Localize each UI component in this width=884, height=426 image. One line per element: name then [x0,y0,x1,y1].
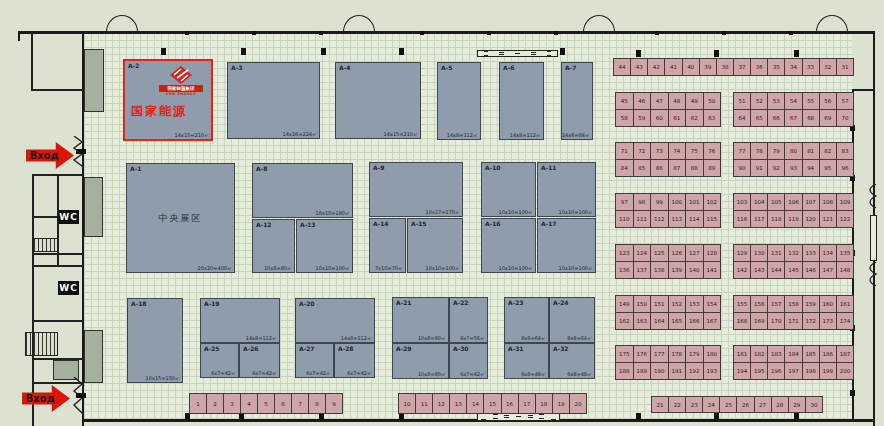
booth-a-22[interactable]: A-228x7=56㎡ [449,297,488,343]
small-booth-104[interactable]: 104 [750,193,768,211]
small-booth-178[interactable]: 178 [668,345,687,363]
small-booth-169[interactable]: 169 [750,312,768,330]
wall-dot [319,31,323,35]
small-booth-24[interactable]: 24 [702,396,720,413]
small-booth-19[interactable]: 19 [552,393,570,414]
small-booth-82[interactable]: 82 [819,142,837,160]
small-booth-175[interactable]: 175 [615,345,634,363]
small-booth-162[interactable]: 162 [615,312,634,330]
booth-a-21[interactable]: A-2110x8=80㎡ [392,297,449,343]
small-booth-164[interactable]: 164 [650,312,669,330]
small-booth-59[interactable]: 59 [633,109,652,127]
small-booth-65[interactable]: 65 [750,109,768,127]
booth-row: 90919293949596 [734,160,854,177]
booth-a-9[interactable]: A-910x17=170㎡ [369,162,463,217]
small-booth-15[interactable]: 15 [483,393,501,414]
small-booth-99[interactable]: 99 [650,193,669,211]
column-marker [636,413,641,420]
booth-row: 162163164165166167 [616,313,721,330]
small-booth-161[interactable]: 161 [836,295,854,313]
small-booth-66[interactable]: 66 [767,109,785,127]
small-booth-140[interactable]: 140 [685,261,704,279]
booth-size-label: 6x7=42㎡ [460,371,485,377]
small-booth-197[interactable]: 197 [784,362,802,380]
wc-label-bottom: WC [58,281,79,295]
booth-row: 110111112113114115 [616,211,721,228]
column-marker [794,413,799,420]
booth-a-20[interactable]: A-2014x8=112㎡ [295,298,375,343]
small-booth-5[interactable]: 5 [257,393,275,414]
small-booth-160[interactable]: 160 [819,295,837,313]
wall-dot [487,31,491,35]
booth-a-7[interactable]: A-714x6=84㎡ [561,62,593,140]
booth-size-label: 6x7=42㎡ [347,370,372,376]
booth-a-26[interactable]: A-266x7=42㎡ [239,343,280,378]
small-booth-149[interactable]: 149 [615,295,634,313]
small-booth-1[interactable]: 1 [189,393,207,414]
small-booth-181[interactable]: 181 [733,345,751,363]
small-booth-32[interactable]: 32 [819,58,837,76]
booth-row: 64656667686970 [734,110,854,127]
utility-box [84,330,103,383]
small-booth-38[interactable]: 38 [716,58,734,76]
small-booth-2[interactable]: 2 [206,393,224,414]
small-booth-125[interactable]: 125 [650,244,669,262]
booth-size-label: 7x10=70㎡ [375,265,403,271]
right-group-5-left: 149150151152153154162163164165166167 [616,296,721,330]
small-booth-72[interactable]: 72 [633,142,652,160]
small-booth-80[interactable]: 80 [784,142,802,160]
small-booth-17[interactable]: 17 [518,393,536,414]
small-booth-106[interactable]: 106 [784,193,802,211]
small-booth-49[interactable]: 49 [685,92,704,110]
small-booth-107[interactable]: 107 [802,193,820,211]
booth-id-label: A-16 [485,220,500,227]
booth-a-8[interactable]: A-818x10=180㎡ [252,163,353,218]
small-booth-89[interactable]: 89 [703,159,722,177]
small-booth-64[interactable]: 64 [733,109,751,127]
small-booth-198[interactable]: 198 [802,362,820,380]
booth-size-label: 10x8=80㎡ [264,265,292,271]
small-booth-76[interactable]: 76 [703,142,722,160]
small-booth-3[interactable]: 3 [223,393,241,414]
booth-id-label: A-2 [128,62,139,69]
small-booth-68[interactable]: 68 [802,109,820,127]
small-booth-176[interactable]: 176 [633,345,652,363]
small-booth-20[interactable]: 20 [569,393,587,414]
booth-a-3[interactable]: A-314x16=224㎡ [227,62,320,139]
booth-size-label: 10x8=80㎡ [418,371,446,377]
booth-id-label: A-17 [541,220,556,227]
small-booth-98[interactable]: 98 [633,193,652,211]
small-booth-35[interactable]: 35 [767,58,785,76]
small-booth-134[interactable]: 134 [819,244,837,262]
small-booth-57[interactable]: 57 [836,92,854,110]
small-booth-117[interactable]: 117 [750,210,768,228]
small-booth-136[interactable]: 136 [615,261,634,279]
small-booth-156[interactable]: 156 [750,295,768,313]
booth-a-25[interactable]: A-256x7=42㎡ [200,343,239,378]
booth-size-label: 10x10=100㎡ [316,265,350,271]
booth-a-12[interactable]: A-1210x8=80㎡ [252,219,295,273]
small-booth-33[interactable]: 33 [802,58,820,76]
small-booth-116[interactable]: 116 [733,210,751,228]
small-booth-37[interactable]: 37 [733,58,751,76]
small-booth-55[interactable]: 55 [802,92,820,110]
small-booth-126[interactable]: 126 [668,244,687,262]
booth-id-label: A-18 [131,300,146,307]
booth-a-2[interactable]: A-214x15=210㎡国家能源集团CHN ENERGY国家能源 [123,59,213,141]
small-booth-93[interactable]: 93 [784,159,802,177]
small-booth-45[interactable]: 45 [615,92,634,110]
small-booth-63[interactable]: 63 [703,109,722,127]
booth-id-label: A-7 [565,64,576,71]
small-booth-52[interactable]: 52 [750,92,768,110]
small-booth-56[interactable]: 56 [819,92,837,110]
small-booth-137[interactable]: 137 [633,261,652,279]
small-booth-115[interactable]: 115 [703,210,722,228]
small-booth-127[interactable]: 127 [685,244,704,262]
small-booth-180[interactable]: 180 [703,345,722,363]
column-marker [321,48,326,55]
small-booth-148[interactable]: 148 [836,261,854,279]
booth-id-label: A-9 [373,164,384,171]
small-booth-90[interactable]: 90 [733,159,751,177]
small-booth-184[interactable]: 184 [784,345,802,363]
booth-row: 454647484950 [616,93,721,110]
wall-tick [850,390,855,396]
small-booth-111[interactable]: 111 [633,210,652,228]
booth-size-label: 18x10=180㎡ [316,210,350,216]
small-booth-147[interactable]: 147 [819,261,837,279]
booth-row: 129130131132133134135 [734,245,854,262]
small-booth-26[interactable]: 26 [736,396,754,413]
small-booth-86[interactable]: 86 [650,159,669,177]
small-booth-192[interactable]: 192 [685,362,704,380]
small-booth-146[interactable]: 146 [802,261,820,279]
small-booth-179[interactable]: 179 [685,345,704,363]
small-booth-92[interactable]: 92 [767,159,785,177]
small-booth-42[interactable]: 42 [647,58,665,76]
small-booth-101[interactable]: 101 [685,193,704,211]
booth-a-10[interactable]: A-1010x10=100㎡ [481,162,536,217]
small-booth-170[interactable]: 170 [767,312,785,330]
small-booth-51[interactable]: 51 [733,92,751,110]
booth-a-4[interactable]: A-414x15=210㎡ [335,62,421,139]
small-booth-159[interactable]: 159 [802,295,820,313]
column-marker [185,413,190,420]
booth-a-11[interactable]: A-1110x10=100㎡ [537,162,596,217]
booth-row: 51525354555657 [734,93,854,110]
booth-id-label: A-12 [256,221,271,228]
small-booth-152[interactable]: 152 [668,295,687,313]
small-booth-44[interactable]: 44 [613,58,631,76]
small-booth-151[interactable]: 151 [650,295,669,313]
booth-row: 149150151152153154 [616,296,721,313]
small-booth-129[interactable]: 129 [733,244,751,262]
small-booth-130[interactable]: 130 [750,244,768,262]
revolving-door-icon [70,136,86,168]
small-booth-131[interactable]: 131 [767,244,785,262]
small-booth-110[interactable]: 110 [615,210,634,228]
small-booth-60[interactable]: 60 [650,109,669,127]
booth-a-28[interactable]: A-286x7=42㎡ [334,343,375,378]
small-booth-54[interactable]: 54 [784,92,802,110]
small-booth-84[interactable]: 84 [615,159,634,177]
small-booth-48[interactable]: 48 [668,92,687,110]
small-booth-69[interactable]: 69 [819,109,837,127]
building-wall [32,265,83,267]
small-booth-114[interactable]: 114 [685,210,704,228]
booth-id-label: A-15 [411,220,426,227]
small-booth-73[interactable]: 73 [650,142,669,160]
small-booth-102[interactable]: 102 [703,193,722,211]
booth-size-label: 10x8=80㎡ [418,335,446,341]
small-booth-124[interactable]: 124 [633,244,652,262]
small-booth-74[interactable]: 74 [668,142,687,160]
small-booth-12[interactable]: 12 [432,393,450,414]
small-booth-139[interactable]: 139 [668,261,687,279]
column-marker [560,48,565,55]
booth-a-5[interactable]: A-514x8=112㎡ [437,62,481,140]
small-booth-75[interactable]: 75 [685,142,704,160]
chn-energy-logo-icon [168,66,194,84]
small-booth-9[interactable]: 9 [325,393,343,414]
small-booth-27[interactable]: 27 [754,396,772,413]
small-booth-96[interactable]: 96 [836,159,854,177]
small-booth-191[interactable]: 191 [668,362,687,380]
small-booth-120[interactable]: 120 [802,210,820,228]
small-booth-166[interactable]: 166 [685,312,704,330]
small-booth-4[interactable]: 4 [240,393,258,414]
booth-a-15[interactable]: A-1510x10=100㎡ [407,218,463,273]
small-booth-113[interactable]: 113 [668,210,687,228]
small-booth-109[interactable]: 109 [836,193,854,211]
small-booth-154[interactable]: 154 [703,295,722,313]
small-booth-200[interactable]: 200 [836,362,854,380]
small-booth-122[interactable]: 122 [836,210,854,228]
small-booth-143[interactable]: 143 [750,261,768,279]
booth-a-23[interactable]: A-238x8=64㎡ [504,297,549,343]
small-booth-171[interactable]: 171 [784,312,802,330]
small-booth-187[interactable]: 187 [836,345,854,363]
small-booth-23[interactable]: 23 [685,396,703,413]
small-booth-183[interactable]: 183 [767,345,785,363]
booth-a-30[interactable]: A-306x7=42㎡ [449,343,488,379]
small-booth-16[interactable]: 16 [501,393,519,414]
small-booth-132[interactable]: 132 [784,244,802,262]
small-booth-70[interactable]: 70 [836,109,854,127]
small-booth-119[interactable]: 119 [784,210,802,228]
booth-size-label: 14x15=210㎡ [175,132,209,138]
right-group-2-left: 717273747576848586878889 [616,143,721,177]
booth-size-label: 6x7=42㎡ [211,370,236,376]
booth-a-6[interactable]: A-614x8=112㎡ [499,62,544,140]
small-booth-61[interactable]: 61 [668,109,687,127]
small-booth-188[interactable]: 188 [615,362,634,380]
small-booth-18[interactable]: 18 [535,393,553,414]
right-group-3-left: 979899100101102110111112113114115 [616,194,721,228]
small-booth-150[interactable]: 150 [633,295,652,313]
small-booth-155[interactable]: 155 [733,295,751,313]
small-booth-145[interactable]: 145 [784,261,802,279]
small-booth-123[interactable]: 123 [615,244,634,262]
small-booth-103[interactable]: 103 [733,193,751,211]
small-booth-172[interactable]: 172 [802,312,820,330]
small-booth-199[interactable]: 199 [819,362,837,380]
small-booth-142[interactable]: 142 [733,261,751,279]
small-booth-8[interactable]: 8 [308,393,326,414]
small-booth-31[interactable]: 31 [836,58,854,76]
small-booth-22[interactable]: 22 [668,396,686,413]
bottom-strip-1: 123456789 [189,393,343,414]
booth-size-label: 10x15=150㎡ [146,375,180,381]
booth-row: 194195196197198199200 [734,363,854,380]
small-booth-194[interactable]: 194 [733,362,751,380]
booth-id-label: A-30 [453,345,468,352]
small-booth-83[interactable]: 83 [836,142,854,160]
booth-a-31[interactable]: A-316x8=48㎡ [504,343,549,379]
wall-dot [722,31,726,35]
small-booth-53[interactable]: 53 [767,92,785,110]
small-booth-6[interactable]: 6 [274,393,292,414]
booth-id-label: A-22 [453,299,468,306]
small-booth-100[interactable]: 100 [668,193,687,211]
booth-size-label: 8x7=56㎡ [460,335,485,341]
small-booth-182[interactable]: 182 [750,345,768,363]
small-booth-186[interactable]: 186 [819,345,837,363]
booth-row: 155156157158159160161 [734,296,854,313]
logo-sub-text: CHN ENERGY [153,92,209,96]
small-booth-95[interactable]: 95 [819,159,837,177]
small-booth-138[interactable]: 138 [650,261,669,279]
small-booth-144[interactable]: 144 [767,261,785,279]
stairs-icon [33,238,58,252]
small-booth-7[interactable]: 7 [291,393,309,414]
small-booth-108[interactable]: 108 [819,193,837,211]
small-booth-177[interactable]: 177 [650,345,669,363]
small-booth-28[interactable]: 28 [771,396,789,413]
small-booth-46[interactable]: 46 [633,92,652,110]
small-booth-25[interactable]: 25 [719,396,737,413]
small-booth-30[interactable]: 30 [805,396,823,413]
small-booth-133[interactable]: 133 [802,244,820,262]
small-booth-189[interactable]: 189 [633,362,652,380]
small-booth-128[interactable]: 128 [703,244,722,262]
small-booth-163[interactable]: 163 [633,312,652,330]
small-booth-173[interactable]: 173 [819,312,837,330]
small-booth-36[interactable]: 36 [750,58,768,76]
booth-a-18[interactable]: A-1810x15=150㎡ [127,298,183,383]
booth-id-label: A-29 [396,345,411,352]
small-booth-79[interactable]: 79 [767,142,785,160]
small-booth-190[interactable]: 190 [650,362,669,380]
small-booth-43[interactable]: 43 [630,58,648,76]
small-booth-185[interactable]: 185 [802,345,820,363]
booth-row: 979899100101102 [616,194,721,211]
small-booth-158[interactable]: 158 [784,295,802,313]
small-booth-85[interactable]: 85 [633,159,652,177]
booth-row: 103104105106107108109 [734,194,854,211]
booth-a-14[interactable]: A-147x10=70㎡ [369,218,406,273]
small-booth-62[interactable]: 62 [685,109,704,127]
small-booth-88[interactable]: 88 [685,159,704,177]
small-booth-21[interactable]: 21 [651,396,669,413]
small-booth-195[interactable]: 195 [750,362,768,380]
small-booth-77[interactable]: 77 [733,142,751,160]
booth-id-label: A-25 [204,345,219,352]
small-booth-39[interactable]: 39 [699,58,717,76]
small-booth-87[interactable]: 87 [668,159,687,177]
small-booth-41[interactable]: 41 [664,58,682,76]
booth-size-label: 10x10=100㎡ [499,265,533,271]
booth-a-24[interactable]: A-248x8=64㎡ [549,297,595,343]
small-booth-135[interactable]: 135 [836,244,854,262]
small-booth-13[interactable]: 13 [449,393,467,414]
small-booth-29[interactable]: 29 [788,396,806,413]
booth-a-13[interactable]: A-1310x10=100㎡ [296,219,353,273]
small-booth-112[interactable]: 112 [650,210,669,228]
small-booth-168[interactable]: 168 [733,312,751,330]
booth-a-16[interactable]: A-1610x10=100㎡ [481,218,536,273]
small-booth-47[interactable]: 47 [650,92,669,110]
small-booth-94[interactable]: 94 [802,159,820,177]
small-booth-71[interactable]: 71 [615,142,634,160]
booth-row: 116117118119120121122 [734,211,854,228]
booth-id-label: A-11 [541,164,556,171]
right-group-3-right: 1031041051061071081091161171181191201211… [734,194,854,228]
small-booth-78[interactable]: 78 [750,142,768,160]
small-booth-174[interactable]: 174 [836,312,854,330]
booth-row: 136137138139140141 [616,262,721,279]
small-booth-34[interactable]: 34 [784,58,802,76]
right-group-4-left: 123124125126127128136137138139140141 [616,245,721,279]
small-booth-167[interactable]: 167 [703,312,722,330]
bottom-strip-2: 1011121314151617181920 [398,393,587,414]
small-booth-50[interactable]: 50 [703,92,722,110]
wall-top [18,31,875,34]
booth-a-19[interactable]: A-1914x8=112㎡ [200,298,280,343]
small-booth-91[interactable]: 91 [750,159,768,177]
booth-a-32[interactable]: A-326x8=48㎡ [549,343,595,379]
booth-a-29[interactable]: A-2910x8=80㎡ [392,343,449,379]
small-booth-165[interactable]: 165 [668,312,687,330]
small-booth-40[interactable]: 40 [682,58,700,76]
small-booth-14[interactable]: 14 [466,393,484,414]
booth-a-17[interactable]: A-1710x10=100㎡ [537,218,596,273]
small-booth-193[interactable]: 193 [703,362,722,380]
booth-center-text: 中央展区 [127,164,234,272]
small-booth-153[interactable]: 153 [685,295,704,313]
booth-size-label: 10x10=100㎡ [426,265,460,271]
booth-a-1[interactable]: A-120x20=400㎡中央展区 [126,163,235,273]
small-booth-58[interactable]: 58 [615,109,634,127]
booth-a-27[interactable]: A-276x7=42㎡ [295,343,334,378]
small-booth-105[interactable]: 105 [767,193,785,211]
small-booth-97[interactable]: 97 [615,193,634,211]
small-booth-81[interactable]: 81 [802,142,820,160]
small-booth-11[interactable]: 11 [415,393,433,414]
booth-row: 848586878889 [616,160,721,177]
small-booth-121[interactable]: 121 [819,210,837,228]
small-booth-141[interactable]: 141 [703,261,722,279]
small-booth-157[interactable]: 157 [767,295,785,313]
small-booth-67[interactable]: 67 [784,109,802,127]
small-booth-196[interactable]: 196 [767,362,785,380]
small-booth-118[interactable]: 118 [767,210,785,228]
small-booth-10[interactable]: 10 [398,393,416,414]
right-door-swing-icon [866,262,878,286]
